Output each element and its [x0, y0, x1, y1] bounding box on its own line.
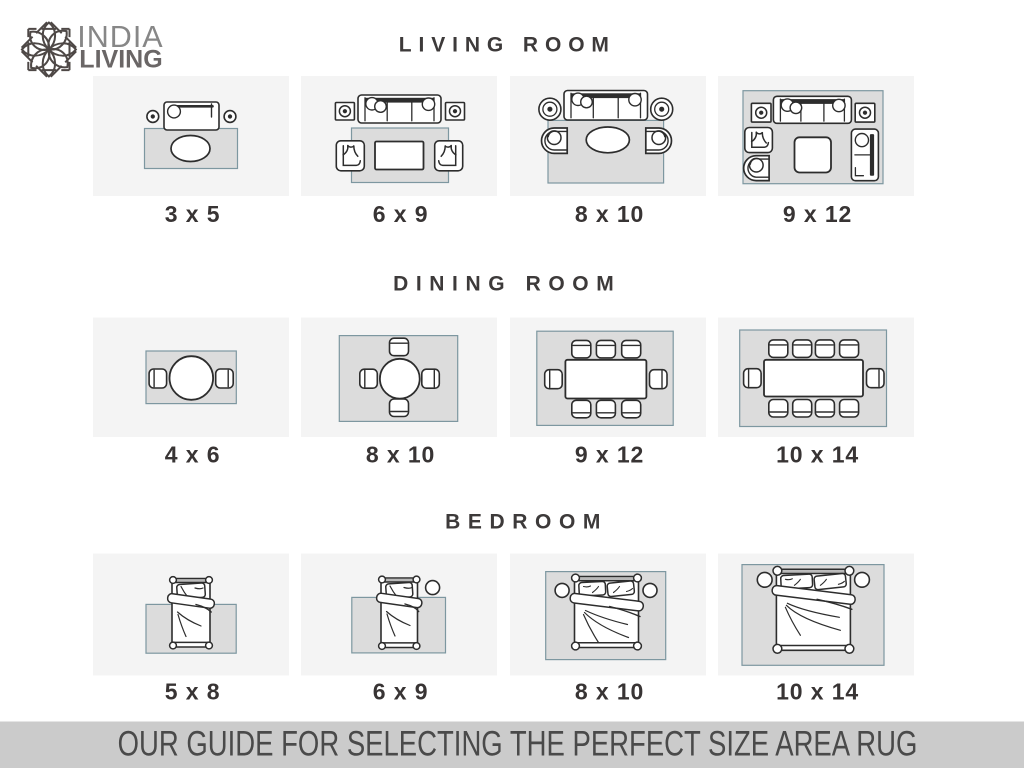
svg-text:5 x 8: 5 x 8 — [165, 679, 221, 705]
svg-text:3 x 5: 3 x 5 — [165, 201, 221, 227]
svg-text:LIVING ROOM: LIVING ROOM — [399, 34, 616, 57]
svg-text:8 x 10: 8 x 10 — [366, 442, 435, 468]
svg-text:6 x 9: 6 x 9 — [373, 201, 429, 227]
svg-text:9 x 12: 9 x 12 — [575, 442, 644, 468]
svg-text:OUR GUIDE FOR SELECTING THE PE: OUR GUIDE FOR SELECTING THE PERFECT SIZE… — [118, 724, 918, 763]
svg-text:4 x 6: 4 x 6 — [165, 442, 221, 468]
svg-text:LIVING: LIVING — [79, 46, 162, 74]
svg-text:BEDROOM: BEDROOM — [445, 511, 608, 534]
svg-text:9 x 12: 9 x 12 — [783, 201, 852, 227]
svg-text:6 x 9: 6 x 9 — [373, 679, 429, 705]
svg-text:8 x 10: 8 x 10 — [575, 679, 644, 705]
svg-text:10 x 14: 10 x 14 — [776, 679, 859, 705]
svg-text:DINING ROOM: DINING ROOM — [393, 273, 621, 296]
svg-text:10 x 14: 10 x 14 — [776, 442, 859, 468]
svg-text:8 x 10: 8 x 10 — [575, 201, 644, 227]
